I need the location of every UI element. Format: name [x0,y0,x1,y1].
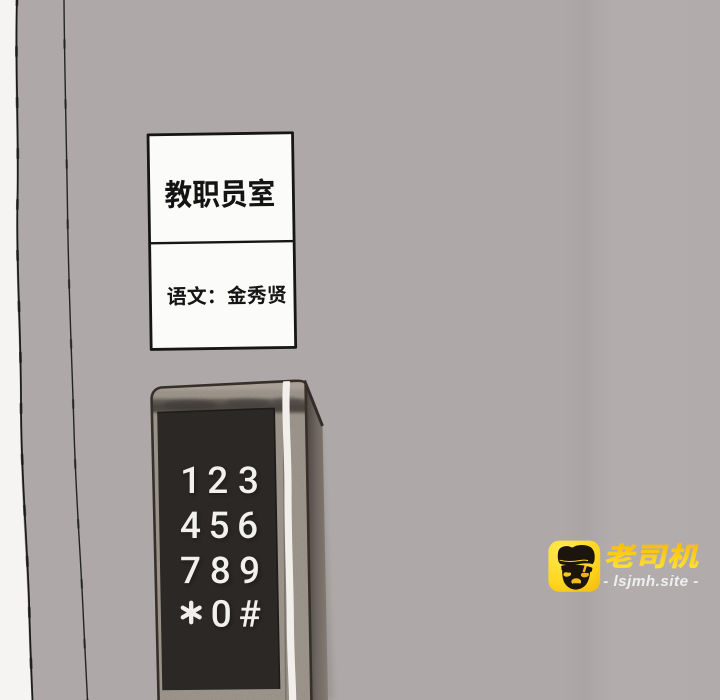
svg-text:- lsjmh.site -: - lsjmh.site - [603,573,699,590]
